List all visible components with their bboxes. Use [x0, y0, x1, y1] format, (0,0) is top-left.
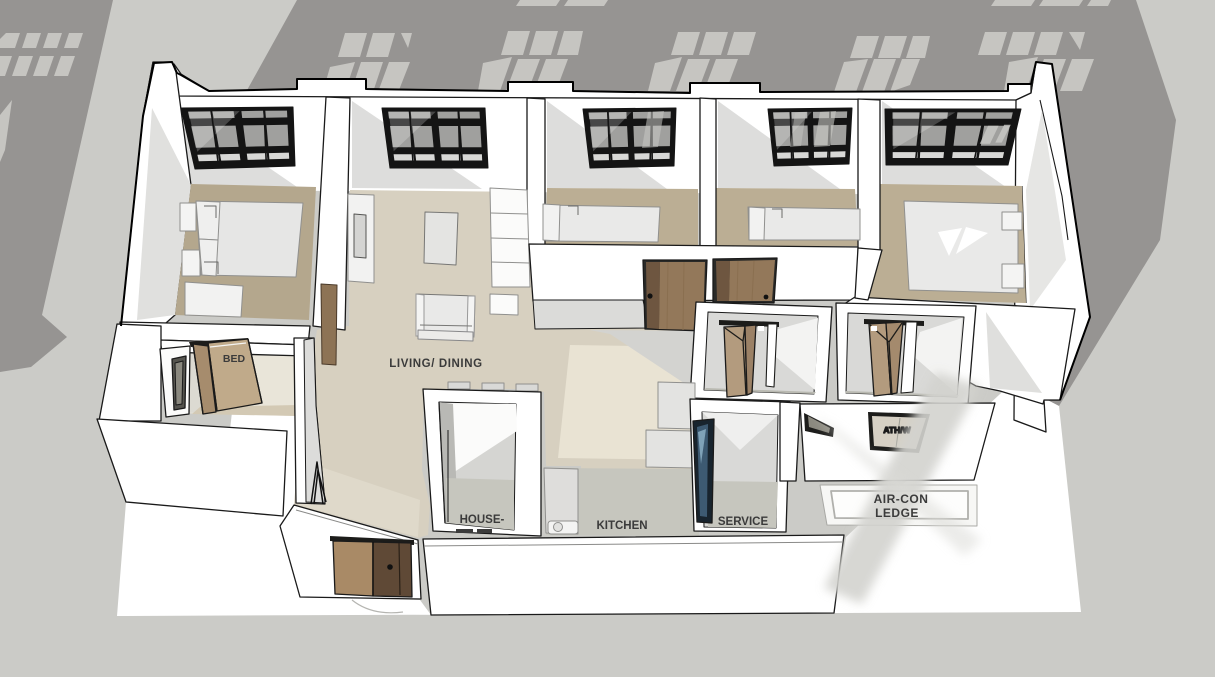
- svg-text:LIVING/ DINING: LIVING/ DINING: [389, 358, 482, 370]
- svg-text:BED: BED: [223, 353, 246, 365]
- svg-text:KITCHEN: KITCHEN: [596, 520, 647, 532]
- svg-text:LEDGE: LEDGE: [875, 506, 919, 520]
- svg-text:HOUSE-: HOUSE-: [460, 514, 505, 526]
- svg-text:AIR-CON: AIR-CON: [874, 492, 929, 506]
- svg-text:SERVICE: SERVICE: [718, 516, 769, 528]
